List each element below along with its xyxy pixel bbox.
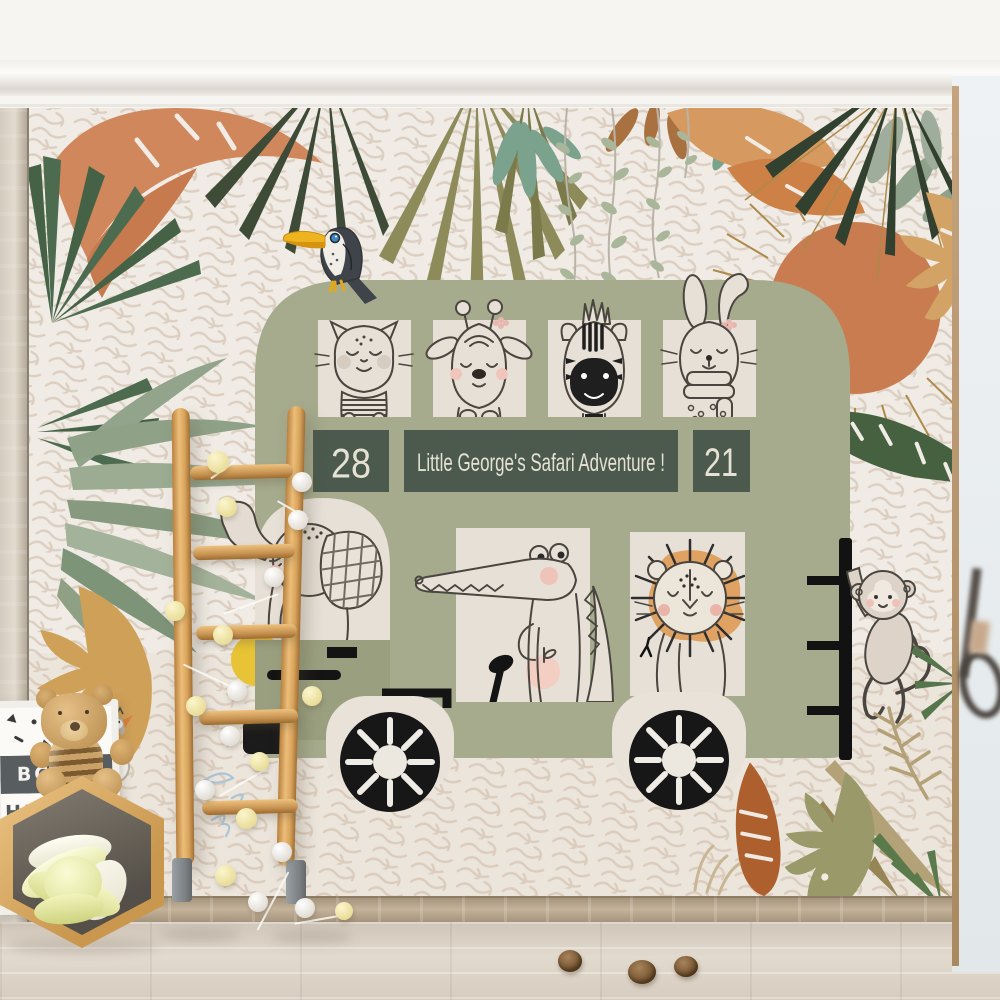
- safari-bus: 28 Little George's Safari Adventure ! 21: [221, 228, 929, 812]
- pompom: [335, 902, 353, 920]
- pinecone: [674, 956, 698, 977]
- ladder-shadow: [272, 930, 352, 944]
- ladder-rung: [193, 544, 295, 561]
- pompom: [295, 898, 315, 918]
- ladder-rung: [196, 624, 297, 641]
- safari-mural-wall: 28 Little George's Safari Adventure ! 21: [27, 108, 958, 898]
- pompom: [288, 510, 308, 530]
- ladder-foot: [172, 858, 192, 902]
- route-number-right: 21: [704, 441, 738, 485]
- pompom: [264, 567, 284, 587]
- crocodile-window: [456, 528, 590, 702]
- bear-nose: [70, 722, 80, 731]
- crown-molding: [0, 60, 1000, 96]
- mural-illustration: 28 Little George's Safari Adventure ! 21: [27, 108, 958, 898]
- pompom: [250, 752, 269, 771]
- adjacent-white-wall: [952, 76, 1000, 972]
- pompom: [227, 681, 247, 701]
- pompom: [292, 472, 312, 492]
- pinecone: [558, 950, 582, 972]
- route-number-left: 28: [331, 440, 371, 487]
- pompom: [215, 865, 236, 886]
- nursery-room-photo: 28 Little George's Safari Adventure ! 21: [0, 0, 1000, 1000]
- bear-arm: [110, 739, 134, 765]
- pompom: [220, 726, 240, 746]
- hanging-strap-tan: [968, 620, 990, 654]
- pompom: [302, 686, 322, 706]
- pompom: [236, 808, 257, 829]
- bear-eye: [58, 711, 62, 715]
- pompom: [272, 842, 292, 862]
- banner-text: Little George's Safari Adventure !: [417, 449, 665, 477]
- ladder-rung: [199, 709, 298, 726]
- hexagon-shelf: [0, 776, 164, 948]
- pompom: [186, 696, 206, 716]
- pompom: [165, 601, 185, 621]
- pompom: [217, 497, 237, 517]
- bear-eye: [85, 710, 89, 714]
- ladder-rung: [190, 464, 293, 481]
- pompom: [213, 625, 233, 645]
- wall-corner-trim: [952, 86, 959, 966]
- pompom: [207, 451, 229, 473]
- pinecone: [628, 960, 656, 984]
- pompom: [248, 892, 268, 912]
- knot-pillow: [14, 832, 146, 936]
- pompom: [195, 780, 215, 800]
- ladder-shadow: [160, 928, 240, 942]
- molding-shadow: [0, 104, 1000, 107]
- hanging-strap-loop: [953, 647, 1000, 723]
